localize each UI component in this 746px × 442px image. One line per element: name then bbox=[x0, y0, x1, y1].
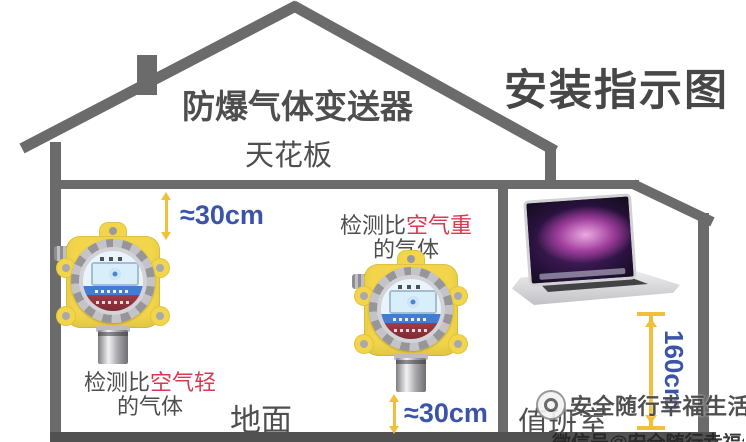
floor-gap-value: ≈30cm bbox=[404, 398, 488, 429]
laptop-icon bbox=[512, 197, 680, 305]
chimney-icon bbox=[137, 55, 157, 95]
detector-bezel bbox=[369, 267, 453, 351]
watermark-bottom-text: 微信号@安全随行幸福生活 bbox=[552, 433, 744, 442]
laptop-screen bbox=[523, 193, 637, 286]
detector-display bbox=[79, 247, 147, 315]
watermark-brand: 安全随行幸福生活 bbox=[570, 389, 746, 421]
gauge-icon bbox=[407, 296, 418, 307]
detector-display bbox=[377, 275, 445, 343]
display-red-band bbox=[83, 295, 143, 311]
note-light-highlight: 空气轻 bbox=[150, 370, 216, 395]
floor-gap-arrow-icon bbox=[388, 394, 400, 434]
height-measure-arrow-up-icon bbox=[645, 318, 657, 327]
watermark: 安全随行幸福生活 bbox=[536, 389, 746, 421]
display-blue-band bbox=[83, 286, 143, 295]
gauge-icon bbox=[109, 268, 120, 279]
sensor-probe-icon bbox=[396, 358, 426, 392]
display-dots bbox=[100, 257, 126, 261]
roof-left-slope bbox=[19, 0, 299, 153]
device-name-label: 防爆气体变送器 bbox=[182, 80, 413, 128]
note-light-prefix: 检测比 bbox=[84, 370, 150, 395]
page-title: 安装指示图 bbox=[504, 56, 729, 118]
gas-detector-left-icon bbox=[58, 222, 168, 364]
display-screen bbox=[389, 290, 436, 314]
ceiling-gap-value: ≈30cm bbox=[180, 200, 264, 231]
mount-ear-icon bbox=[150, 306, 170, 326]
display-red-band bbox=[381, 323, 441, 339]
installation-diagram: 安装指示图 防爆气体变送器 天花板 地面 值班室 ≈30cm ≈30cm 160… bbox=[0, 0, 746, 442]
mount-ear-icon bbox=[56, 306, 76, 326]
roof-eave-stub bbox=[545, 149, 556, 189]
display-dots bbox=[398, 285, 424, 289]
interior-wall bbox=[498, 185, 508, 436]
mount-ear-icon bbox=[448, 334, 468, 354]
ceiling-label: 天花板 bbox=[245, 132, 332, 174]
ground-label: 地面 bbox=[230, 395, 292, 440]
watermark-logo-icon bbox=[536, 390, 566, 420]
mount-ear-icon bbox=[354, 334, 374, 354]
watermark-bottom-cutoff: 微信号@安全随行幸福生活 bbox=[552, 428, 744, 442]
display-blue-band bbox=[381, 314, 441, 323]
note-light-line2: 的气体 bbox=[83, 395, 217, 419]
note-heavy-prefix: 检测比 bbox=[340, 213, 406, 238]
note-light-gas: 检测比空气轻 的气体 bbox=[83, 371, 217, 419]
detector-bezel bbox=[71, 239, 155, 323]
note-heavy-highlight: 空气重 bbox=[406, 213, 472, 238]
display-screen bbox=[91, 262, 138, 286]
gas-detector-middle-icon bbox=[356, 250, 466, 392]
sensor-probe-icon bbox=[98, 330, 128, 364]
